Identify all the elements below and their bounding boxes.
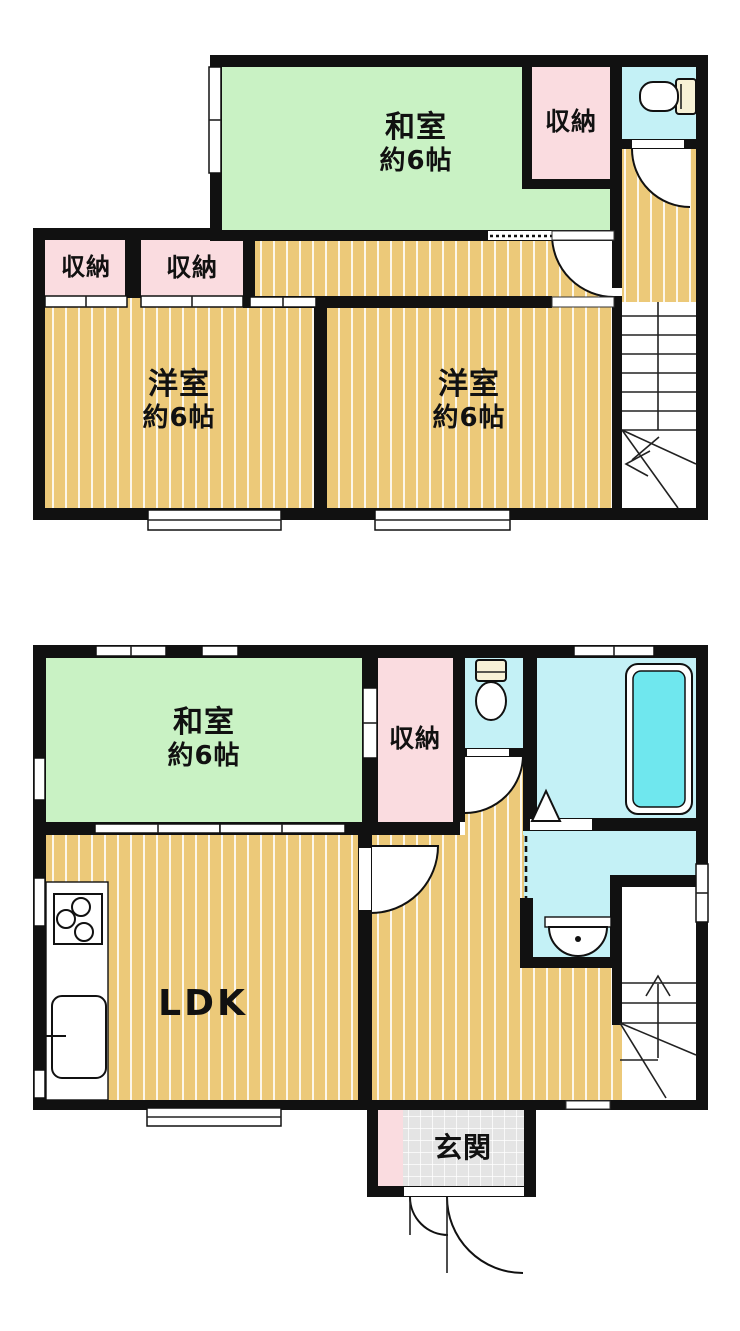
f1-washitsu-label: 和室 約6帖 — [84, 705, 324, 772]
f2-oshiire-mid-label: 収納 — [141, 253, 243, 283]
wall-segment — [243, 240, 255, 298]
wall-segment — [610, 55, 622, 240]
room-name: 和室 — [84, 705, 324, 741]
room-name: 洋室 — [349, 367, 589, 403]
f2-washitsu-door-opening — [552, 231, 614, 240]
washbasin-faucet — [575, 936, 581, 942]
f1-genkan-label: 玄関 — [393, 1131, 533, 1165]
toilet-tank — [476, 660, 506, 681]
wall-segment — [358, 822, 460, 835]
f2-toilet-door-opening — [632, 140, 684, 148]
wall-segment — [520, 957, 622, 968]
f1-ldk-door-opening — [359, 848, 371, 910]
entrance-door-arc-small — [410, 1197, 448, 1235]
room-name: 和室 — [296, 110, 536, 146]
wall-segment — [367, 1100, 378, 1197]
f2-youshitsu-left-label: 洋室 約6帖 — [59, 367, 299, 434]
f2-stairwell — [622, 302, 696, 508]
wall-segment — [523, 658, 537, 818]
floorplan-canvas: 和室 約6帖 収納 収納 収納 洋室 約6帖 洋室 約6帖 和室 約6帖 収納 … — [0, 0, 740, 1331]
window — [34, 758, 45, 800]
wall-segment — [210, 55, 708, 67]
window — [202, 646, 238, 656]
room-area: 約6帖 — [84, 741, 324, 772]
wall-segment — [612, 957, 622, 1025]
f1-toilet-door-opening — [467, 749, 509, 756]
wall-segment — [612, 233, 622, 288]
room-area: 約6帖 — [296, 146, 536, 177]
wall-segment — [125, 240, 141, 298]
window — [34, 1070, 45, 1098]
f1-oshiire-label: 収納 — [370, 724, 460, 754]
f2-washitsu-label: 和室 約6帖 — [296, 110, 536, 177]
room-area: 約6帖 — [59, 403, 299, 434]
f1-toilet-icon — [476, 660, 506, 720]
f1-entrance-opening — [404, 1187, 524, 1196]
wall-segment — [612, 296, 622, 508]
wall-segment — [33, 228, 45, 520]
wall-segment — [610, 875, 700, 887]
wall-segment — [33, 508, 708, 520]
washbasin-counter — [545, 917, 611, 927]
wall-segment — [610, 875, 622, 968]
bathtub-inner — [633, 671, 685, 807]
f1-storage-room — [622, 887, 696, 968]
window — [34, 878, 45, 926]
f2-toilet-icon — [640, 79, 696, 114]
f2-youshitsu-right-door-opening — [552, 297, 614, 307]
f1-ldk-label: LDK — [103, 982, 303, 1025]
stove — [54, 894, 102, 944]
f1-hallway-lower — [522, 968, 622, 1100]
wall-segment — [696, 55, 708, 520]
f1-stairwell — [622, 968, 696, 1100]
room-name: 洋室 — [59, 367, 299, 403]
room-area: 約6帖 — [349, 403, 589, 434]
toilet-bowl — [476, 682, 506, 720]
wall-segment — [314, 296, 327, 508]
f1-entrance-door-icon — [410, 1197, 523, 1273]
f1-bathtub-icon — [626, 664, 692, 814]
entrance-door-arc-large — [447, 1197, 523, 1273]
wall-segment — [520, 898, 533, 958]
toilet-bowl — [640, 82, 678, 111]
floorplan-graphics — [0, 0, 740, 1331]
window — [566, 1101, 610, 1109]
wall-segment — [33, 228, 222, 240]
f2-youshitsu-right-label: 洋室 約6帖 — [349, 367, 589, 434]
f2-oshiire-top-label: 収納 — [531, 107, 611, 137]
wall-segment — [522, 179, 614, 189]
f1-kitchen-icon — [44, 882, 108, 1100]
f2-oshiire-left-label: 収納 — [45, 253, 127, 282]
